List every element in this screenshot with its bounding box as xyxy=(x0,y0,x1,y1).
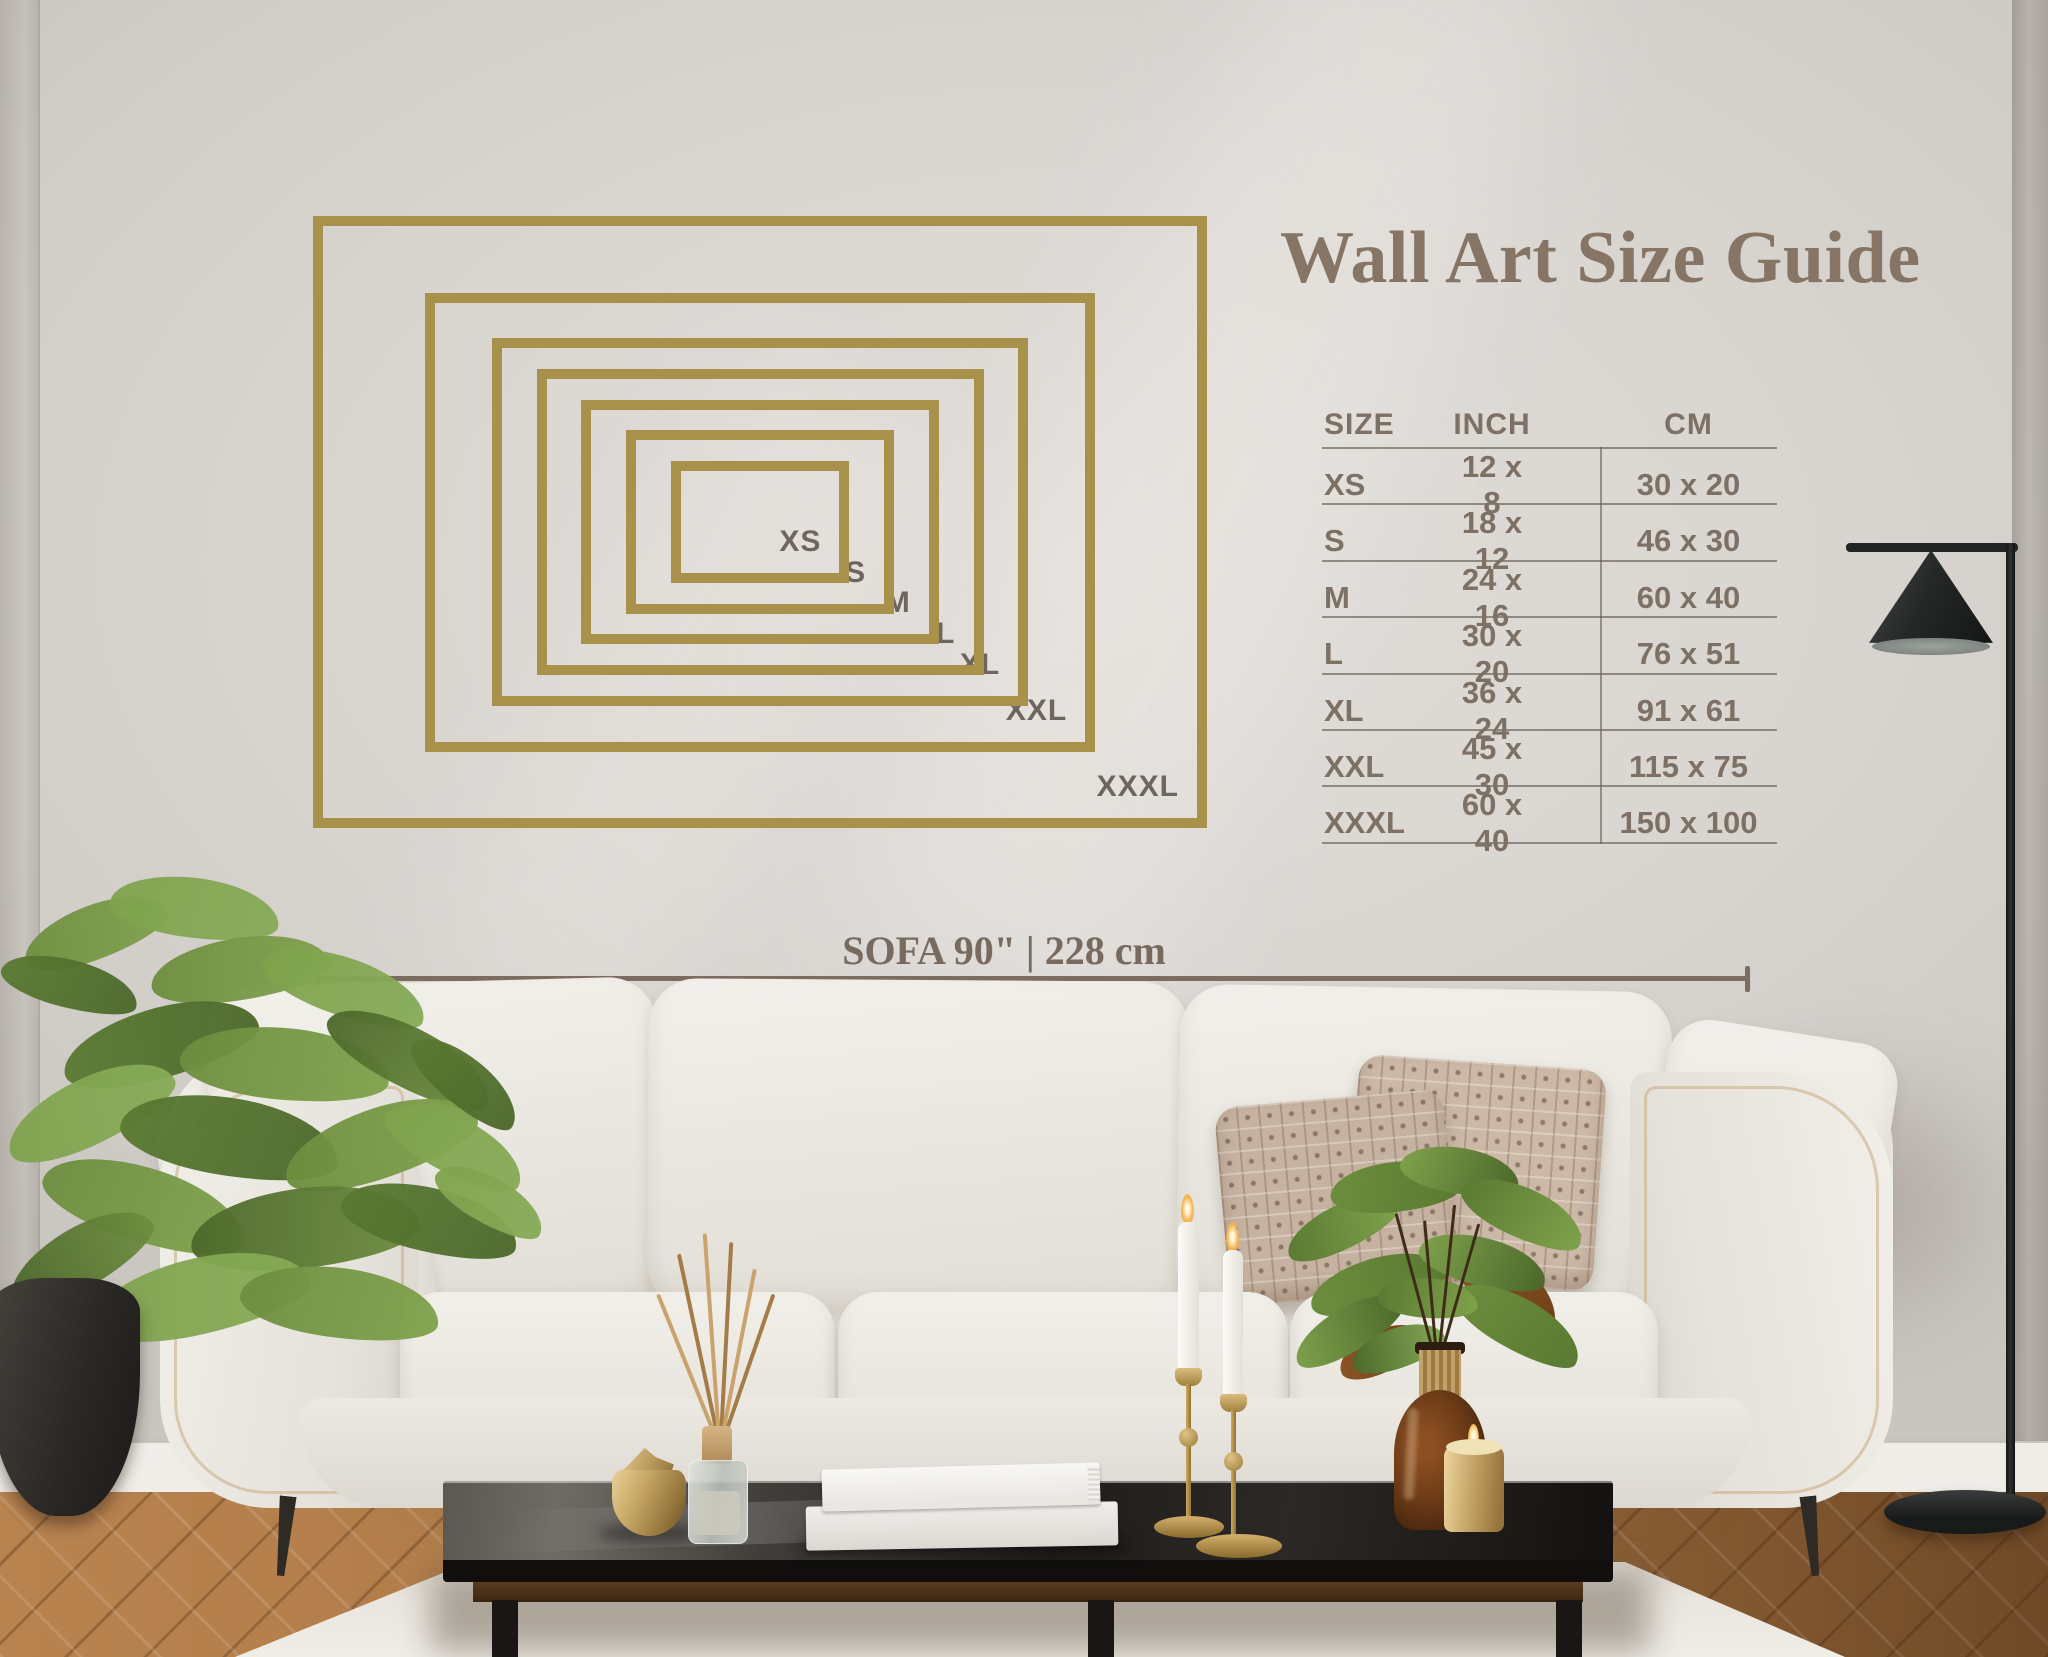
size-table-header: SIZEINCHCM xyxy=(1322,402,1777,449)
table-cell: XXXL xyxy=(1322,805,1450,841)
coffee-table-edge xyxy=(443,1560,1613,1582)
diffuser-bottle xyxy=(688,1460,748,1544)
table-row: S18 x 1246 x 30 xyxy=(1322,505,1777,561)
table-header-cell: SIZE xyxy=(1322,408,1450,442)
coffee-table-leg-middle xyxy=(1088,1600,1114,1657)
table-cell: XL xyxy=(1322,693,1450,729)
table-row: XXXL60 x 40150 x 100 xyxy=(1322,787,1777,843)
coffee-table-leg-right xyxy=(1556,1600,1582,1657)
floor-lamp-pole xyxy=(2006,543,2015,1515)
book-page-edges xyxy=(1088,1466,1101,1500)
table-header-cell: INCH xyxy=(1450,408,1600,442)
diffuser-liquid xyxy=(694,1491,740,1535)
table-cell: 115 x 75 xyxy=(1600,749,1777,785)
sofa-width-line-cap-right xyxy=(1745,966,1750,992)
floor-lamp-cone-opening xyxy=(1872,638,1990,655)
sofa-width-label: SOFA 90" | 228 cm xyxy=(754,927,1254,974)
floor-lamp-base xyxy=(1884,1490,2046,1534)
wall-corner-left xyxy=(0,0,40,1460)
table-header-cell: CM xyxy=(1600,408,1777,442)
book-top xyxy=(821,1462,1100,1511)
gold-candle-top xyxy=(1446,1439,1502,1455)
candlestick-base-left xyxy=(1154,1516,1224,1538)
candlestick-stem-left xyxy=(1186,1384,1191,1524)
table-cell: L xyxy=(1322,636,1450,672)
table-row: XS12 x 830 x 20 xyxy=(1322,449,1777,505)
table-cell: XXL xyxy=(1322,749,1450,785)
coffee-table-stretcher xyxy=(473,1582,1583,1602)
floor-lamp-arm xyxy=(1846,543,2018,552)
frame-label-l: L xyxy=(936,617,955,651)
table-row: M24 x 1660 x 40 xyxy=(1322,562,1777,618)
vase-highlight xyxy=(1404,1408,1419,1500)
table-cell: 46 x 30 xyxy=(1600,523,1777,559)
table-row: L30 x 2076 x 51 xyxy=(1322,618,1777,674)
candlestick-ball-right xyxy=(1224,1452,1243,1471)
table-cell: 76 x 51 xyxy=(1600,636,1777,672)
frame-label-xxxl: XXXL xyxy=(1097,770,1179,804)
diffuser-cap xyxy=(702,1426,732,1464)
table-cell: 30 x 20 xyxy=(1600,467,1777,503)
table-cell: XS xyxy=(1322,467,1450,503)
frame-rect-xs xyxy=(671,461,850,583)
frame-label-xs: XS xyxy=(779,525,821,559)
table-cell: S xyxy=(1322,523,1450,559)
table-cell: M xyxy=(1322,580,1450,616)
table-column-divider xyxy=(1600,447,1602,844)
gold-pillar-candle xyxy=(1444,1446,1504,1532)
coffee-table-leg-left xyxy=(492,1600,518,1657)
table-row: XL36 x 2491 x 61 xyxy=(1322,675,1777,731)
table-row: XXL45 x 30115 x 75 xyxy=(1322,731,1777,787)
living-room-scene: XXXLXXLXLLMSXS Wall Art Size Guide SIZEI… xyxy=(0,0,2048,1657)
taper-candle-left xyxy=(1178,1222,1199,1372)
candlestick-ball-left xyxy=(1179,1428,1198,1447)
table-cell: 60 x 40 xyxy=(1450,787,1600,859)
taper-candle-right xyxy=(1223,1250,1243,1396)
candlestick-stem-right xyxy=(1231,1410,1236,1540)
candlestick-base-right xyxy=(1196,1534,1282,1558)
table-cell: 150 x 100 xyxy=(1600,805,1777,841)
table-cell: 91 x 61 xyxy=(1600,693,1777,729)
page-title: Wall Art Size Guide xyxy=(1280,216,1921,301)
size-table: SIZEINCHCMXS12 x 830 x 20S18 x 1246 x 30… xyxy=(1322,402,1777,844)
wall-corner-right xyxy=(2012,0,2048,1460)
table-cell: 60 x 40 xyxy=(1600,580,1777,616)
